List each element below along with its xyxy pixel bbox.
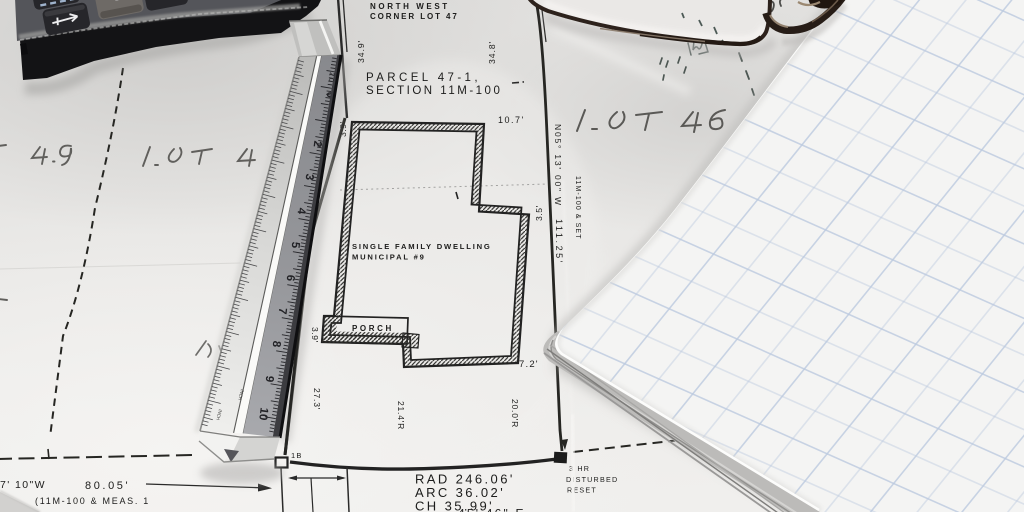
svg-text:2 0: 2 0 (327, 72, 335, 83)
svg-text:PARCEL 47-1,: PARCEL 47-1, (366, 72, 481, 84)
svg-text:10.7': 10.7' (498, 115, 525, 125)
svg-text:SECTION 11M-100: SECTION 11M-100 (366, 85, 502, 97)
svg-text:MUNICIPAL #9: MUNICIPAL #9 (352, 253, 426, 262)
svg-text:N05° 13' 00" W: N05° 13' 00" W (553, 124, 563, 207)
svg-text:7' 10"W: 7' 10"W (0, 479, 46, 491)
svg-text:34.8': 34.8' (487, 41, 497, 64)
svg-text:111.25': 111.25' (554, 219, 564, 265)
svg-text:20.0'R: 20.0'R (510, 399, 520, 428)
svg-text:SINGLE FAMILY DWELLING: SINGLE FAMILY DWELLING (352, 242, 492, 251)
svg-text:45' 46" E: 45' 46" E (458, 507, 526, 512)
svg-text:NORTH WEST: NORTH WEST (370, 2, 450, 11)
svg-text:34.9': 34.9' (356, 40, 366, 63)
svg-text:3.9': 3.9' (310, 327, 320, 343)
svg-text:PORCH: PORCH (352, 324, 394, 333)
svg-text:3.5': 3.5' (534, 205, 544, 221)
svg-text:7.2': 7.2' (519, 359, 539, 370)
svg-text:1B: 1B (291, 451, 303, 460)
svg-text:10: 10 (256, 407, 269, 421)
svg-text:(11M-100 & MEAS. 1: (11M-100 & MEAS. 1 (35, 496, 150, 506)
svg-text:21.4'R: 21.4'R (396, 401, 406, 430)
svg-text:27.3': 27.3' (312, 388, 322, 410)
svg-text:80.05': 80.05' (85, 480, 130, 492)
svg-text:11M-100 & SET: 11M-100 & SET (574, 176, 581, 240)
svg-text:CORNER LOT 47: CORNER LOT 47 (370, 12, 459, 21)
